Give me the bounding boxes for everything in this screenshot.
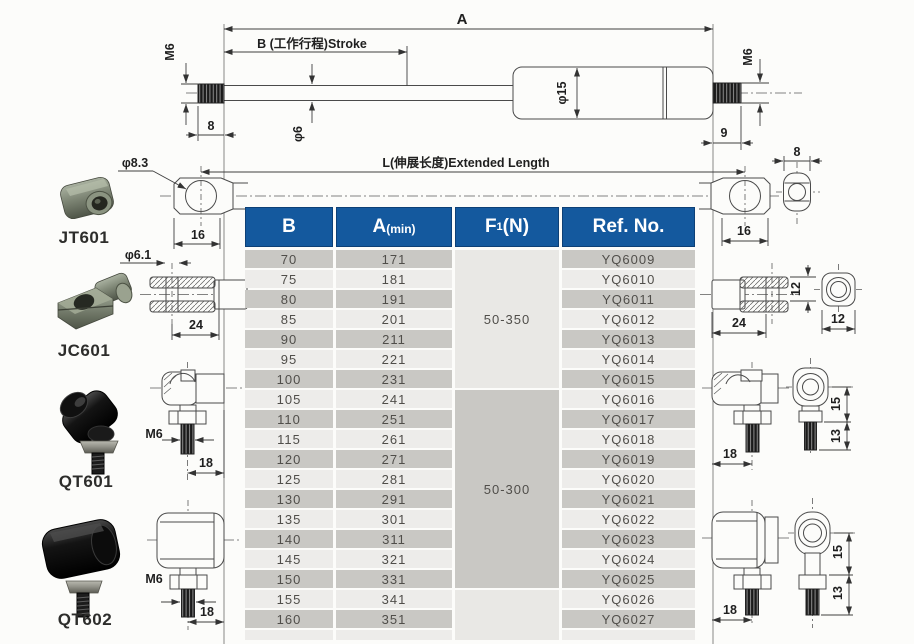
svg-text:13: 13: [829, 429, 843, 443]
dim-m6-left: M6: [163, 43, 199, 125]
cell-ref: YQ6022: [562, 510, 695, 528]
cell-a: 331: [336, 570, 452, 588]
cell-a: 211: [336, 330, 452, 348]
cell-a: 241: [336, 390, 452, 408]
qt601-front-view: 15 13: [786, 358, 856, 456]
jc601-photo: [58, 271, 135, 329]
dim-8-label: 8: [208, 119, 215, 133]
cell-b: 155: [245, 590, 333, 608]
partial-row: [245, 630, 333, 640]
svg-text:12: 12: [789, 282, 803, 296]
partial-row: [562, 630, 695, 640]
cell-b: 90: [245, 330, 333, 348]
tube-dia-label: φ15: [555, 82, 569, 105]
dim-a: A: [224, 11, 713, 29]
jt601-label: JT601: [59, 228, 110, 247]
col-header-0: B: [245, 207, 333, 247]
dim-12-fork: 12: [789, 265, 816, 313]
eyelet-right: [699, 166, 770, 226]
col-header-1: A(min): [336, 207, 452, 247]
col-header-3: Ref. No.: [562, 207, 695, 247]
cell-b: 110: [245, 410, 333, 428]
cell-a: 261: [336, 430, 452, 448]
cell-ref: YQ6021: [562, 490, 695, 508]
cell-b: 70: [245, 250, 333, 268]
cell-b: 135: [245, 510, 333, 528]
cell-ref: YQ6026: [562, 590, 695, 608]
dim-rod-dia: φ6: [291, 64, 312, 142]
col-header-2: F1(N): [455, 207, 559, 247]
cell-ref: YQ6024: [562, 550, 695, 568]
cell-b: 100: [245, 370, 333, 388]
cell-ref: YQ6017: [562, 410, 695, 428]
clevis-end-view: 12: [814, 264, 864, 334]
clevis-drawing-right: 12 24 12: [700, 263, 864, 338]
jc601-label: JC601: [58, 341, 111, 360]
cell-ref: YQ6011: [562, 290, 695, 308]
qt601-label: QT601: [59, 472, 113, 491]
partial-row: [336, 630, 452, 640]
svg-text:24: 24: [189, 318, 203, 332]
cell-a: 301: [336, 510, 452, 528]
dim-12-end: 12: [822, 310, 855, 334]
datasheet-page: A B (工作行程)Stroke M6 8 φ6 φ15 M6: [0, 0, 914, 644]
dim-8-left: 8: [186, 106, 236, 141]
cell-b: 95: [245, 350, 333, 368]
dim-m6-right: M6: [741, 48, 769, 126]
svg-text:18: 18: [200, 605, 214, 619]
svg-text:M6: M6: [145, 427, 162, 441]
qt601-drawing-right: 18 15 13: [702, 358, 856, 470]
dim-l: L(伸展长度)Extended Length: [201, 155, 745, 172]
cell-ref: YQ6020: [562, 470, 695, 488]
cell-a: 271: [336, 450, 452, 468]
svg-text:16: 16: [737, 224, 751, 238]
cell-b: 80: [245, 290, 333, 308]
cell-a: 251: [336, 410, 452, 428]
qt601-drawing-left: M6 18: [145, 362, 242, 480]
qt602-drawing-left: M6 18: [145, 500, 242, 630]
svg-text:18: 18: [199, 456, 213, 470]
cell-a: 201: [336, 310, 452, 328]
cell-b: 145: [245, 550, 333, 568]
svg-text:16: 16: [191, 228, 205, 242]
dim-b-stroke: B (工作行程)Stroke: [224, 36, 407, 86]
cell-ref: YQ6009: [562, 250, 695, 268]
cell-a: 311: [336, 530, 452, 548]
force-group: [455, 590, 559, 640]
cell-a: 351: [336, 610, 452, 628]
cell-a: 181: [336, 270, 452, 288]
cell-ref: YQ6016: [562, 390, 695, 408]
cell-ref: YQ6013: [562, 330, 695, 348]
qt602-label: QT602: [58, 610, 112, 629]
dim-8-end-label: 8: [794, 145, 801, 159]
cell-a: 221: [336, 350, 452, 368]
cell-b: 115: [245, 430, 333, 448]
qt602-front-view: 15 13: [788, 498, 858, 628]
svg-text:15: 15: [829, 397, 843, 411]
qt601-photo: [55, 386, 122, 474]
cell-a: 191: [336, 290, 452, 308]
cell-b: 140: [245, 530, 333, 548]
cell-a: 281: [336, 470, 452, 488]
svg-text:13: 13: [831, 586, 845, 600]
cell-b: 130: [245, 490, 333, 508]
cell-ref: YQ6025: [562, 570, 695, 588]
cell-ref: YQ6015: [562, 370, 695, 388]
cell-ref: YQ6027: [562, 610, 695, 628]
svg-text:18: 18: [723, 603, 737, 617]
cell-a: 171: [336, 250, 452, 268]
cell-b: 160: [245, 610, 333, 628]
cell-a: 321: [336, 550, 452, 568]
cell-b: 125: [245, 470, 333, 488]
rod-dia-label: φ6: [291, 126, 305, 142]
dim-16-left: 16: [174, 218, 220, 249]
force-group: 50-350: [455, 250, 559, 388]
body-thread-right: [713, 83, 741, 103]
dim-m6-qt601: M6: [145, 427, 214, 441]
cell-a: 341: [336, 590, 452, 608]
dim-9-label: 9: [721, 126, 728, 140]
svg-text:φ6.1: φ6.1: [125, 248, 151, 262]
dim-24-left: 24: [172, 309, 219, 340]
dim-a-label: A: [457, 11, 468, 28]
cell-b: 120: [245, 450, 333, 468]
body-thread-label: M6: [741, 48, 755, 65]
dim-clevis-hole: φ6.1: [120, 248, 191, 263]
jc601-drawing: φ6.1 24: [120, 248, 258, 340]
cell-ref: YQ6023: [562, 530, 695, 548]
cell-ref: YQ6019: [562, 450, 695, 468]
svg-text:18: 18: [723, 447, 737, 461]
jt601-photo: [59, 175, 116, 220]
cell-ref: YQ6010: [562, 270, 695, 288]
qt602-drawing-right: 18 15 13: [702, 498, 858, 628]
cell-a: 291: [336, 490, 452, 508]
dim-24-right: 24: [712, 312, 766, 338]
cell-ref: YQ6012: [562, 310, 695, 328]
dim-b-label: B (工作行程)Stroke: [257, 36, 367, 51]
rod-thread-label: M6: [163, 43, 177, 60]
svg-text:φ8.3: φ8.3: [122, 156, 148, 170]
gas-spring-drawing: [186, 67, 802, 119]
dim-l-label: L(伸展长度)Extended Length: [382, 155, 549, 170]
qt602-photo: [40, 517, 123, 617]
svg-text:24: 24: [732, 316, 746, 330]
eyelet-end-view: 8: [772, 145, 822, 226]
svg-text:12: 12: [831, 312, 845, 326]
cell-b: 85: [245, 310, 333, 328]
cell-b: 150: [245, 570, 333, 588]
rod-thread-left: [198, 84, 224, 103]
cell-b: 75: [245, 270, 333, 288]
svg-text:M6: M6: [145, 572, 162, 586]
cell-b: 105: [245, 390, 333, 408]
spec-table: BA(min)F1(N)Ref. No.70171YQ600975181YQ60…: [245, 207, 695, 644]
cell-ref: YQ6014: [562, 350, 695, 368]
svg-text:15: 15: [831, 545, 845, 559]
cell-a: 231: [336, 370, 452, 388]
cell-ref: YQ6018: [562, 430, 695, 448]
force-group: 50-300: [455, 390, 559, 588]
